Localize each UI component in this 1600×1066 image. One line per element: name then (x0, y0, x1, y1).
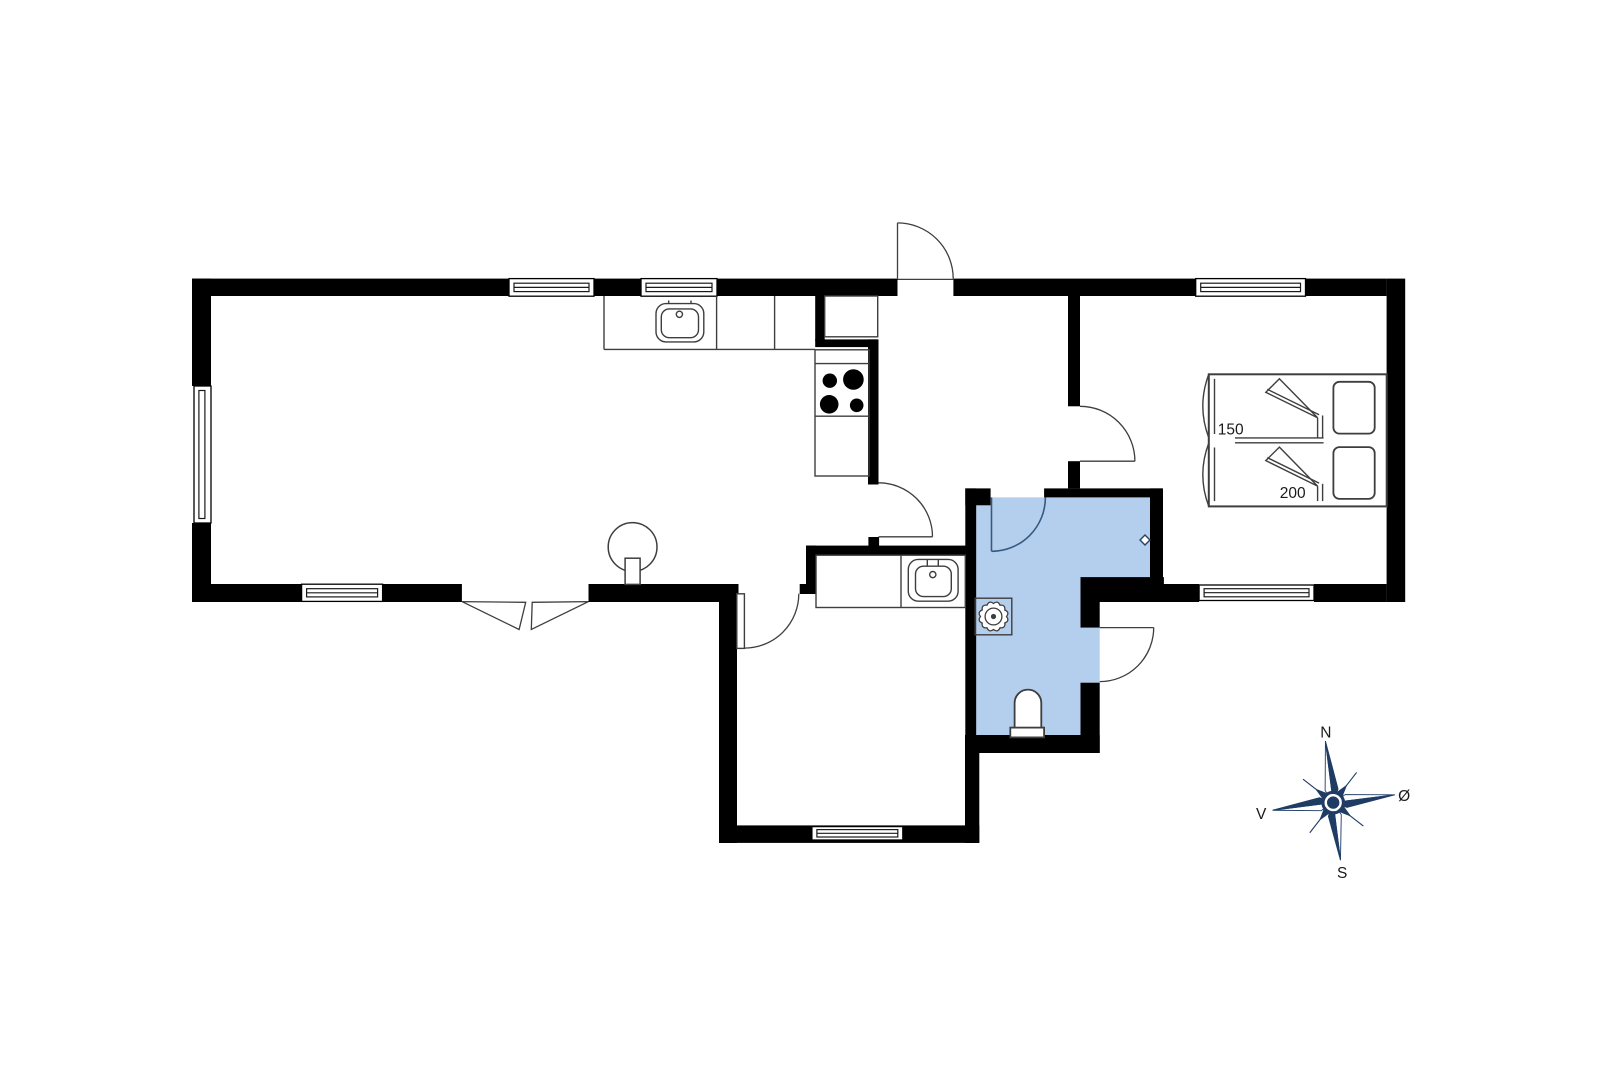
svg-text:Ø: Ø (1398, 788, 1410, 805)
svg-text:150: 150 (1218, 421, 1244, 438)
svg-text:N: N (1320, 725, 1331, 742)
svg-text:200: 200 (1280, 485, 1306, 502)
svg-text:S: S (1337, 865, 1347, 882)
svg-text:V: V (1256, 806, 1267, 823)
